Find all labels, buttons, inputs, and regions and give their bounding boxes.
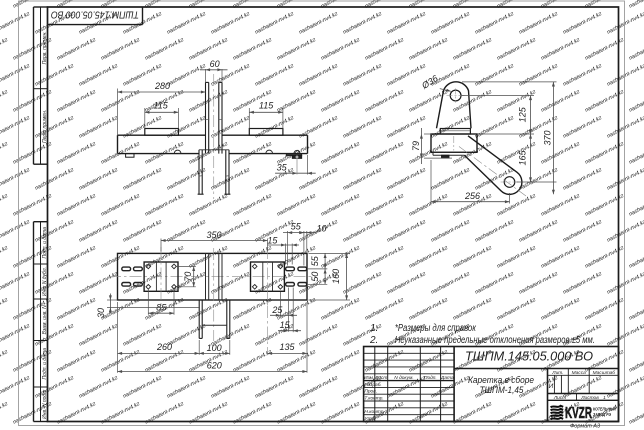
svg-text:Перв. примен.: Перв. примен. — [42, 110, 48, 143]
svg-text:ТШПМ.145.05.000 ВО: ТШПМ.145.05.000 ВО — [51, 9, 139, 20]
svg-text:N докум.: N докум. — [394, 375, 413, 381]
svg-text:Листов: Листов — [580, 395, 599, 401]
svg-text:Инв. N подл.: Инв. N подл. — [42, 390, 48, 419]
svg-text:370: 370 — [543, 130, 553, 145]
svg-text:Инв. N дубл.: Инв. N дубл. — [42, 267, 48, 296]
svg-text:Подп. и дата: Подп. и дата — [42, 227, 48, 259]
svg-text:Подп. и дата: Подп. и дата — [42, 348, 48, 380]
svg-text:30: 30 — [96, 308, 106, 318]
svg-text:Каретка в сборе: Каретка в сборе — [468, 375, 534, 385]
svg-text:55: 55 — [291, 221, 302, 231]
svg-text:1.: 1. — [370, 323, 378, 334]
svg-text:Пров.: Пров. — [364, 389, 377, 395]
svg-text:Дата: Дата — [440, 375, 454, 381]
svg-text:ЗАВОД РЭ: ЗАВОД РЭ — [593, 412, 611, 417]
svg-text:Лист: Лист — [553, 395, 566, 401]
svg-text:KVZR: KVZR — [565, 405, 592, 422]
svg-text:115: 115 — [153, 101, 168, 111]
svg-text:1: 1 — [603, 395, 606, 401]
svg-text:*Размеры для справок: *Размеры для справок — [395, 323, 477, 334]
svg-text:280: 280 — [154, 81, 170, 91]
svg-text:ТШПМ.145.05.000 ВО: ТШПМ.145.05.000 ВО — [465, 348, 593, 363]
svg-text:ТШПМ-1,45: ТШПМ-1,45 — [480, 385, 525, 395]
svg-text:Взам. инв. N: Взам. инв. N — [42, 305, 48, 335]
svg-text:15: 15 — [267, 235, 278, 245]
svg-text:Утв.: Утв. — [364, 416, 375, 422]
svg-text:И: И — [549, 383, 554, 390]
svg-text:Неуказанные предельные отклоне: Неуказанные предельные отклонения размер… — [395, 335, 595, 346]
svg-text:2.: 2. — [369, 335, 378, 346]
svg-text:50: 50 — [310, 272, 320, 282]
svg-text:Перв. примен.: Перв. примен. — [42, 31, 48, 64]
svg-text:Масштаб: Масштаб — [593, 370, 616, 376]
svg-text:100: 100 — [207, 343, 222, 353]
svg-text:Масса: Масса — [572, 370, 587, 376]
svg-text:79: 79 — [411, 141, 421, 151]
svg-text:15: 15 — [280, 320, 291, 330]
svg-text:260: 260 — [156, 342, 172, 352]
svg-text:60: 60 — [210, 59, 220, 69]
svg-text:Т.контр.: Т.контр. — [364, 395, 383, 401]
svg-text:Лист: Лист — [374, 375, 387, 381]
svg-text:135: 135 — [279, 342, 295, 352]
svg-text:Лит.: Лит. — [551, 370, 563, 376]
svg-text:55: 55 — [310, 255, 320, 266]
svg-text:25: 25 — [271, 305, 283, 315]
svg-text:160: 160 — [331, 269, 341, 284]
svg-text:35: 35 — [277, 162, 288, 172]
svg-text:125: 125 — [518, 106, 528, 122]
svg-text:Разраб.: Разраб. — [364, 382, 381, 388]
svg-text:10: 10 — [316, 224, 326, 234]
svg-text:165: 165 — [518, 150, 528, 166]
svg-text:115: 115 — [259, 101, 274, 111]
svg-text:Формат А3: Формат А3 — [570, 424, 601, 430]
svg-text:Н.контр.: Н.контр. — [364, 409, 384, 415]
svg-text:Изм.: Изм. — [364, 375, 374, 381]
svg-text:350: 350 — [206, 230, 221, 240]
svg-text:Подп.: Подп. — [424, 375, 437, 381]
svg-text:256: 256 — [464, 191, 480, 201]
svg-text:КОТЕЛЬНЫЙ: КОТЕЛЬНЫЙ — [593, 407, 617, 412]
svg-text:620: 620 — [207, 361, 222, 371]
svg-text:70: 70 — [183, 272, 193, 282]
